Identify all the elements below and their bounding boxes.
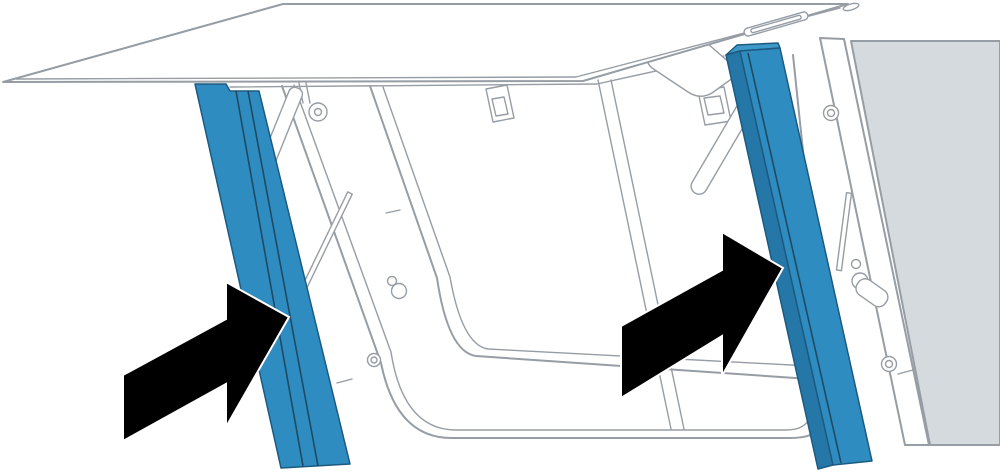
- strut-left-pivot-circle: [309, 103, 327, 121]
- strut-left-ball-end: [392, 284, 407, 299]
- strut-right-end-cap: [852, 260, 861, 269]
- mounting-rivet-top-right: [824, 106, 839, 121]
- illustration-canvas: [0, 0, 1000, 473]
- mounting-rivet-left: [368, 354, 381, 367]
- mounting-rivet-bottom-right: [882, 357, 897, 372]
- hatch-diagram: [0, 0, 1000, 473]
